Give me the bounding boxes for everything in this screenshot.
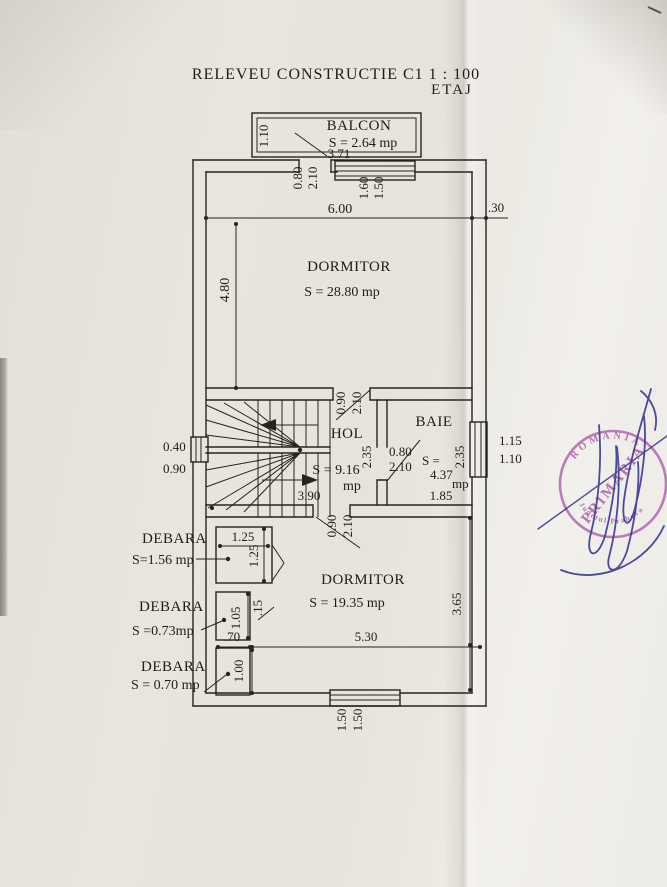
window-left: [191, 437, 208, 462]
dim-window-bottom-w: 1.50: [334, 709, 349, 732]
dim-balcony-door-w: 0.80: [290, 167, 305, 190]
dim-overall-width: 6.00: [328, 202, 353, 217]
dim-dormitor-mic-width: 5.30: [355, 629, 378, 644]
dim-debara3-depth: 1.00: [231, 660, 246, 683]
room-label-hol: HOL: [331, 426, 363, 442]
dim-balcon-width: 3.71: [328, 146, 351, 161]
room-label-baie: BAIE: [416, 414, 453, 430]
dim-hol-door-bottom-w: 0.90: [324, 515, 339, 538]
dim-hol-depth: 2.35: [359, 446, 374, 469]
room-label-dormitor-mic: DORMITOR: [321, 572, 405, 588]
room-area-hol: S = 9.16: [312, 463, 359, 478]
room-area-dormitor-mare: S = 28.80 mp: [304, 285, 380, 300]
dim-debara2-wall-gap: .15: [250, 600, 265, 616]
dim-window-top-w: 1.60: [356, 177, 371, 200]
dim-debara2-depth: 1.05: [228, 607, 243, 630]
dim-window-right-w: 1.15: [499, 433, 522, 448]
dim-window-left-h: 0.90: [163, 461, 186, 476]
room-area-debara3: S = 0.70 mp: [131, 678, 200, 693]
room-area-hol-unit: mp: [343, 479, 361, 494]
window-bottom: [330, 690, 400, 706]
room-label-balcon: BALCON: [327, 118, 392, 134]
dim-hol-door-top-w: 0.90: [333, 392, 348, 415]
dim-debara2-width: .70: [224, 629, 240, 644]
room-label-debara2: DEBARA: [139, 599, 204, 615]
room-label-debara3: DEBARA: [141, 659, 206, 675]
dim-balcony-door-h: 2.10: [305, 167, 320, 190]
room-area-baie-unit: mp: [452, 476, 469, 491]
dim-window-top-h: 1.50: [371, 177, 386, 200]
room-area-baie-value: 4.37: [430, 467, 453, 482]
signature: [538, 389, 667, 575]
room-label-debara1: DEBARA: [142, 531, 207, 547]
dim-balcon-depth: 1.10: [256, 125, 271, 148]
dim-debara1-width: 1.25: [232, 529, 255, 544]
dim-baie-depth: 2.35: [452, 446, 467, 469]
window-right: [470, 422, 487, 477]
room-area-debara2: S =0.73mp: [132, 624, 194, 639]
dim-window-left-w: 0.40: [163, 439, 186, 454]
dim-baie-door-w: 0.80: [389, 444, 412, 459]
floor-plan-drawing: RELEVEU CONSTRUCTIE C1 1 : 100 ETAJ BALC…: [0, 0, 667, 887]
dim-hol-door-bottom-h: 2.10: [340, 515, 355, 538]
room-area-debara1: S=1.56 mp: [132, 553, 194, 568]
dim-baie-door-h: 2.10: [389, 459, 412, 474]
drawing-subtitle-etaj: ETAJ: [431, 82, 473, 98]
room-area-baie-prefix: S =: [422, 453, 440, 468]
dim-hol-width: 3.90: [298, 488, 321, 503]
room-area-dormitor-mic: S = 19.35 mp: [309, 596, 385, 611]
dim-room-depth: 4.80: [218, 278, 233, 303]
room-label-dormitor-mare: DORMITOR: [307, 259, 391, 275]
pen-mark-top-right: [648, 7, 661, 13]
scanned-floor-plan-page: RELEVEU CONSTRUCTIE C1 1 : 100 ETAJ BALC…: [0, 0, 667, 887]
official-stamp: ROMANIA Judetul Prahova PRIMARIA: [560, 430, 666, 537]
dim-window-right-h: 1.10: [499, 451, 522, 466]
drawing-title: RELEVEU CONSTRUCTIE C1 1 : 100: [192, 66, 480, 83]
dim-baie-width: 1.85: [430, 488, 453, 503]
dim-debara1-depth: 1.25: [246, 545, 261, 568]
dim-window-bottom-h: 1.50: [350, 709, 365, 732]
dim-wall-thickness: .30: [488, 200, 504, 215]
dim-dormitor-mic-depth: 3.65: [449, 593, 464, 616]
dim-hol-door-top-h: 2.10: [349, 392, 364, 415]
